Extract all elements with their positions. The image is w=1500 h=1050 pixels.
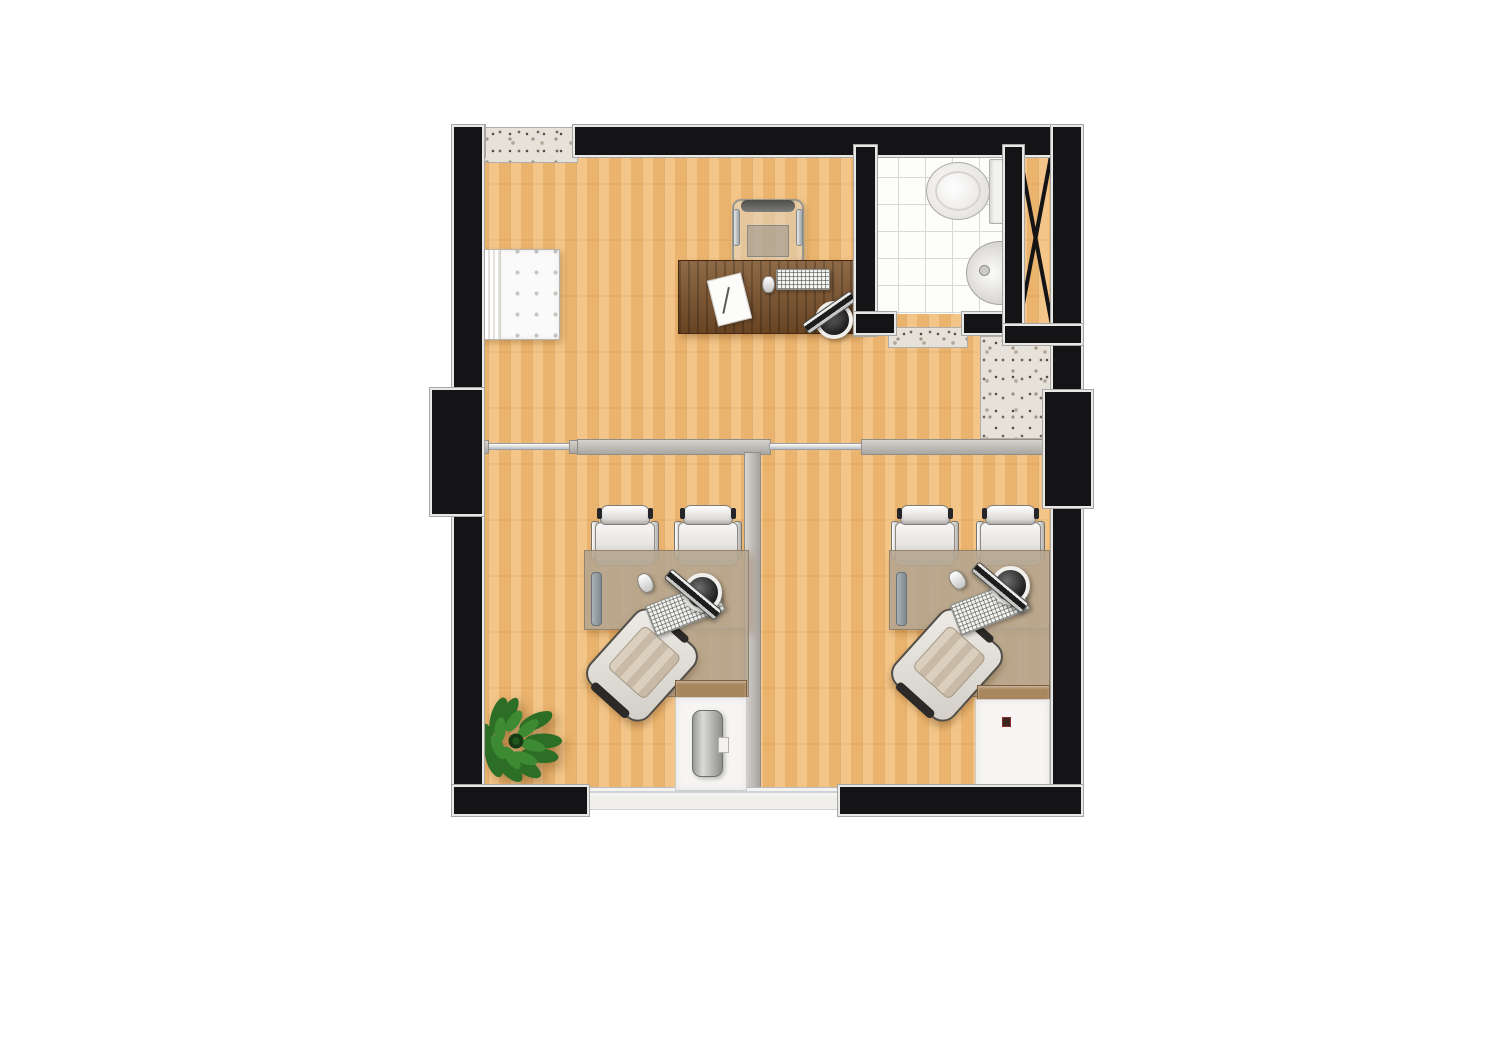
chair-backrest [900, 505, 950, 525]
basin-faucet [1016, 384, 1044, 390]
decor-gift-books [1000, 713, 1034, 759]
chair-backrest [683, 505, 733, 525]
pillar-right [1043, 390, 1093, 508]
sink-faucet-knob [979, 265, 990, 276]
decor-label [1002, 717, 1011, 727]
doorway-header [769, 443, 864, 450]
balcony-slab [431, 806, 1079, 894]
shaft-wall-left [1003, 145, 1024, 332]
chair-backrest [985, 505, 1036, 525]
wall-bottom-left [452, 785, 589, 816]
chair-headrest [741, 200, 795, 212]
bathroom-wall-bottom-left [854, 312, 896, 335]
water-cooler [692, 710, 723, 777]
pillar-left [430, 388, 484, 516]
desk-drawer-unit [896, 572, 907, 626]
basin-tap [1006, 380, 1018, 393]
partition-wall-right [861, 439, 1049, 455]
desk-drawer-unit [591, 572, 602, 626]
glass-partition [484, 443, 574, 450]
chair-arm-left [733, 209, 740, 246]
executive-chair [732, 199, 804, 266]
desk-keyboard [776, 269, 830, 290]
desk-mouse [762, 276, 775, 293]
balcony-door-threshold [585, 796, 838, 810]
balcony-edge-strip [431, 894, 1079, 907]
shaft-wall-bottom [1003, 324, 1083, 345]
floor-plan [0, 0, 1500, 1050]
wall-bottom-right [838, 785, 1083, 816]
decor-ribbon-horizontal [1000, 732, 1034, 738]
chair-backrest [600, 505, 650, 525]
window-sill-granite [477, 127, 578, 163]
bathroom-threshold [888, 327, 968, 348]
partition-wall-left [577, 439, 771, 455]
toilet-bowl [926, 162, 990, 220]
chair-arm-right [796, 209, 803, 246]
balcony-outer-line [431, 909, 1079, 912]
chair-seat-pad [747, 225, 789, 257]
bathroom-wall-left [854, 145, 877, 336]
tufted-bench [477, 249, 560, 340]
